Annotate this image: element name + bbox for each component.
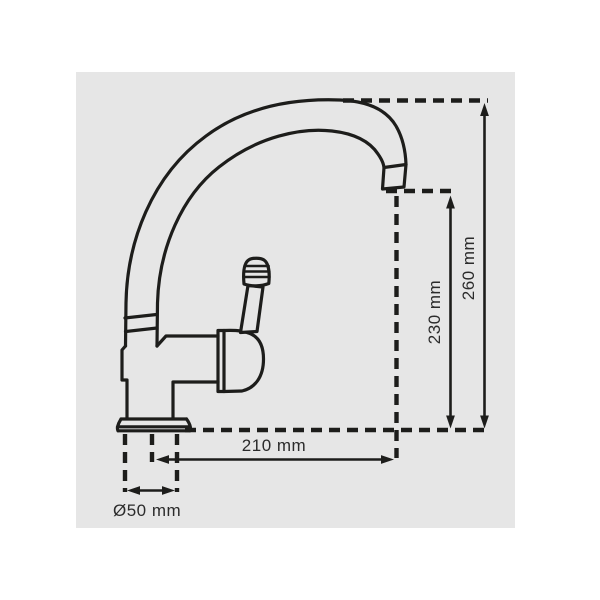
housing-joint-band (218, 331, 224, 392)
dim-arrow-spout-reach (156, 455, 394, 464)
lever-shaft (241, 286, 264, 333)
spout-aerator (383, 165, 407, 190)
cartridge-housing (224, 330, 264, 391)
mixer-body (122, 336, 218, 419)
base-flange (117, 419, 190, 431)
dim-label-base-diameter: Ø50 mm (113, 501, 181, 521)
spout-inner-curve (157, 130, 384, 346)
dim-label-spout-height: 230 mm (425, 262, 445, 362)
dim-arrow-spout-height (446, 196, 455, 429)
faucet-technical-drawing (0, 0, 600, 600)
diagram-stage: 210 mm 230 mm 260 mm Ø50 mm (0, 0, 600, 600)
faucet-lever (241, 258, 270, 332)
dim-arrow-base-diameter (127, 486, 175, 495)
pipe-joint-band (125, 315, 157, 332)
dim-label-total-height: 260 mm (459, 218, 479, 318)
dim-label-spout-reach: 210 mm (214, 436, 334, 456)
dim-arrow-total-height (480, 103, 489, 429)
spout-outer-curve (126, 100, 407, 346)
